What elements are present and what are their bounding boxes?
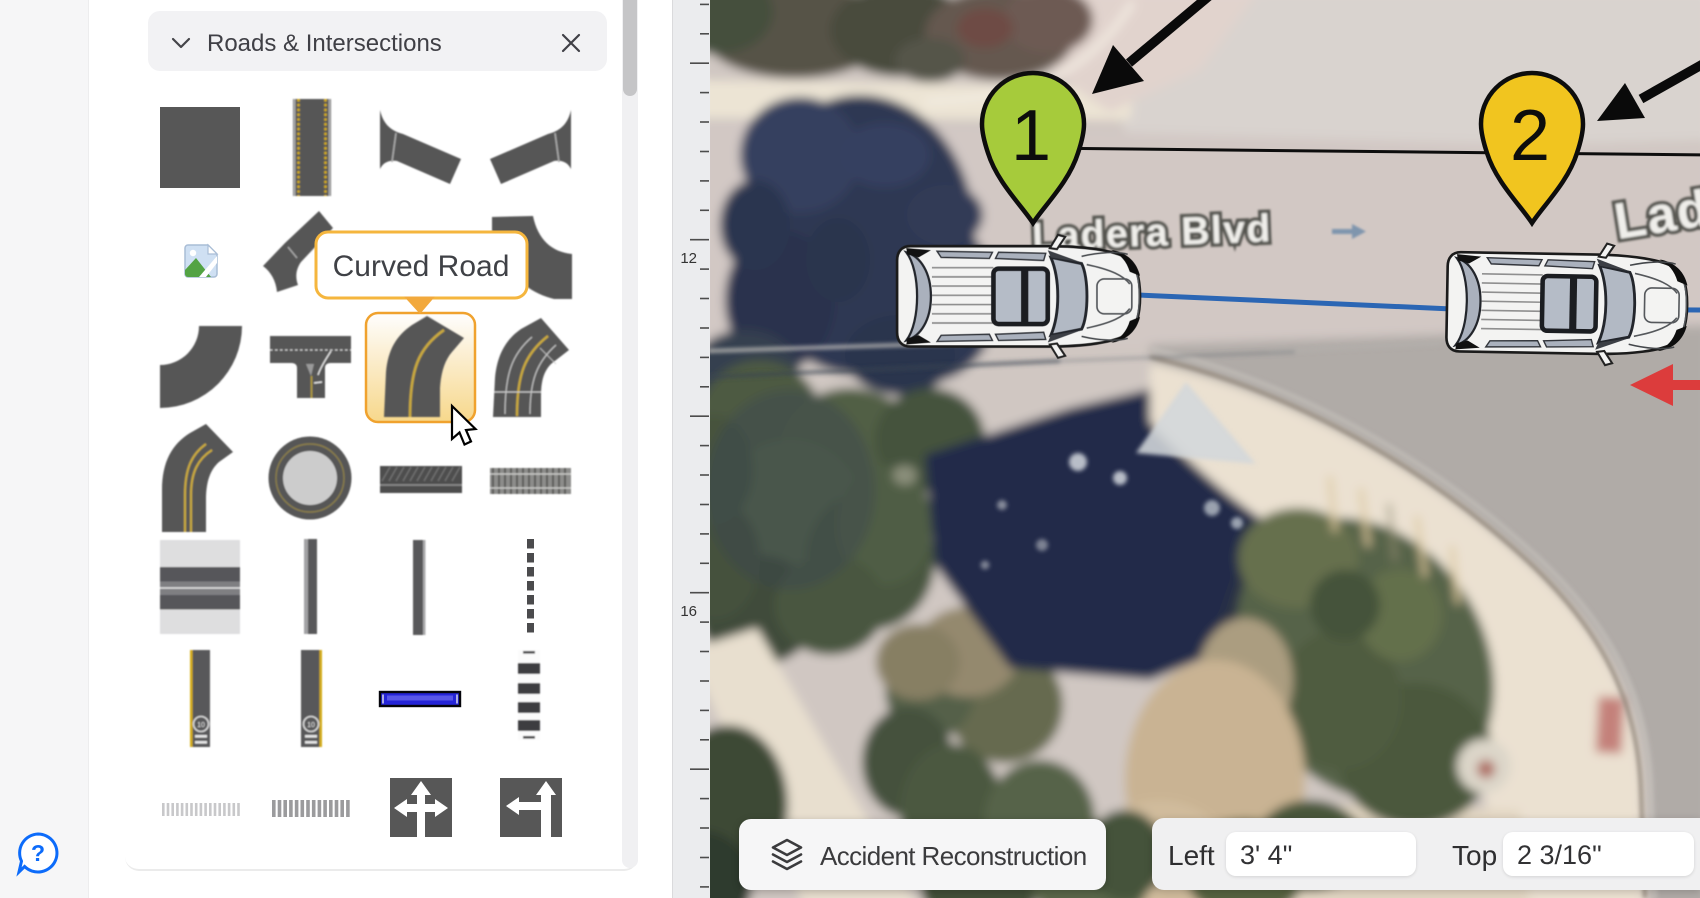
svg-text:10: 10: [197, 722, 205, 729]
svg-text:12: 12: [680, 250, 697, 267]
svg-text:1: 1: [1011, 96, 1051, 176]
svg-text:?: ?: [31, 840, 45, 866]
svg-text:16: 16: [680, 603, 697, 620]
svg-text:2: 2: [1510, 96, 1550, 176]
svg-text:Curved Road: Curved Road: [333, 250, 510, 283]
svg-text:10: 10: [307, 722, 315, 729]
